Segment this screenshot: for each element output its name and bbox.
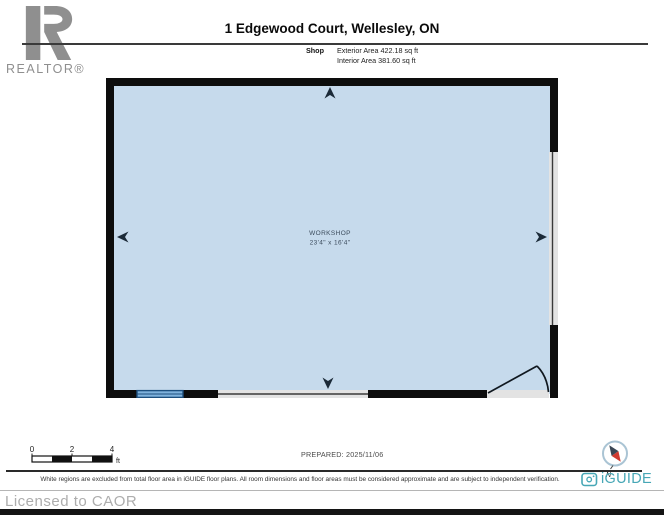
- door-threshold: [487, 390, 549, 398]
- unit-summary: Shop Exterior Area 422.18 sq ft Interior…: [306, 46, 418, 65]
- room-dimensions-label: 23'4" x 16'4": [310, 240, 351, 247]
- disclaimer-text: White regions are excluded from total fl…: [0, 476, 600, 483]
- right-garage-opening: [549, 152, 558, 325]
- page-title: 1 Edgewood Court, Wellesley, ON: [0, 21, 664, 36]
- iguide-wordmark: iGUIDE: [601, 471, 652, 487]
- footer-divider: [6, 470, 642, 472]
- header-divider: [22, 43, 648, 45]
- wall-right-upper: [550, 78, 558, 152]
- wall-bottom-2: [183, 390, 218, 398]
- iguide-logo: iGUIDE: [581, 471, 652, 487]
- scale-tick-2: 2: [70, 445, 75, 454]
- license-text: Licensed to CAOR: [5, 493, 137, 510]
- wall-right-lower: [550, 325, 558, 398]
- scale-tick-4: 4: [110, 445, 115, 454]
- bottom-border-bar: [0, 509, 664, 515]
- wall-left: [106, 78, 114, 398]
- wall-bottom-1: [106, 390, 137, 398]
- interior-area: Interior Area 381.60 sq ft: [337, 56, 418, 66]
- document-bottom-edge: [0, 490, 664, 491]
- unit-areas: Exterior Area 422.18 sq ft Interior Area…: [337, 46, 418, 65]
- floorplan-drawing: WORKSHOP 23'4" x 16'4": [106, 78, 558, 398]
- unit-name: Shop: [306, 46, 324, 56]
- scale-bar: 0 2 4 ft: [28, 444, 140, 466]
- iguide-camera-icon: [581, 471, 598, 487]
- realtor-wordmark: REALTOR®: [6, 62, 98, 76]
- room-interior: [110, 82, 554, 394]
- floorplan-page: REALTOR® 1 Edgewood Court, Wellesley, ON…: [0, 0, 664, 517]
- scale-tick-0: 0: [30, 445, 35, 454]
- exterior-area: Exterior Area 422.18 sq ft: [337, 46, 418, 56]
- wall-bottom-3: [368, 390, 487, 398]
- scale-unit-label: ft: [116, 458, 120, 465]
- wall-top: [106, 78, 558, 86]
- room-name-label: WORKSHOP: [309, 230, 351, 237]
- window: [137, 391, 183, 398]
- realtor-logo: REALTOR®: [6, 6, 98, 76]
- prepared-date: PREPARED: 2025/11/06: [301, 450, 383, 459]
